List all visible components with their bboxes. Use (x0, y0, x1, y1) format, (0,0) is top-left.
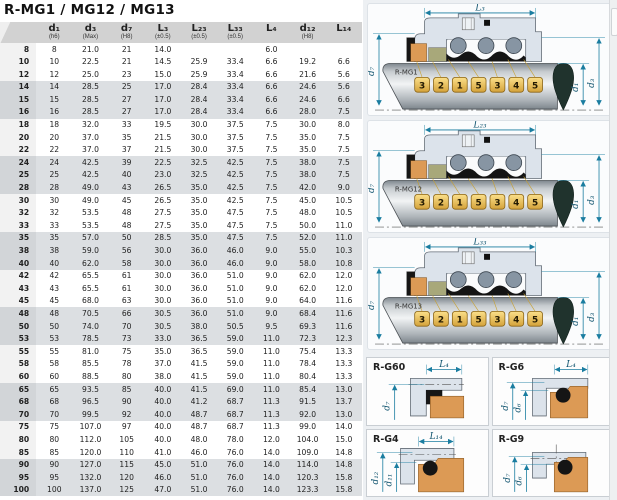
value-cell: 22 (36, 144, 72, 157)
value-cell: 25.9 (181, 56, 217, 69)
value-cell: 28.5 (145, 232, 181, 245)
column-header-size (0, 22, 36, 43)
value-cell: 42.5 (72, 156, 108, 169)
size-cell: 10 (0, 56, 36, 69)
value-cell: 7.5 (253, 156, 289, 169)
value-cell: 50.0 (290, 219, 326, 232)
table-row: 686896.59040.041.268.711.391.513.7 (0, 396, 362, 409)
size-cell: 38 (0, 245, 36, 258)
value-cell: 28.4 (181, 81, 217, 94)
size-cell: 85 (0, 446, 36, 459)
value-cell: 59.0 (217, 358, 253, 371)
value-cell: 21.6 (290, 68, 326, 81)
value-cell: 21 (109, 56, 145, 69)
diagram-r-mg1: 3215345 L₃ R-MG1 d₇ d₁ d₃ (367, 3, 613, 116)
value-cell: 15.0 (145, 68, 181, 81)
table-row: 434365.56130.036.051.09.062.012.0 (0, 282, 362, 295)
value-cell: 78 (109, 358, 145, 371)
value-cell: 33.4 (217, 93, 253, 106)
table-row: 383859.05630.036.046.09.055.010.3 (0, 245, 362, 258)
callout-number: 3 (494, 199, 500, 209)
value-cell: 80 (109, 370, 145, 383)
callout-number: 3 (494, 316, 500, 326)
value-cell: 22.5 (145, 156, 181, 169)
value-cell: 53.5 (72, 207, 108, 220)
table-row: 252542.54023.032.542.57.538.07.5 (0, 169, 362, 182)
value-cell: 17.0 (145, 81, 181, 94)
value-cell: 85.5 (72, 358, 108, 371)
value-cell: 7.5 (253, 182, 289, 195)
value-cell: 42.5 (217, 156, 253, 169)
value-cell: 33.4 (217, 56, 253, 69)
value-cell: 6.0 (253, 43, 289, 56)
callout-number: 5 (476, 316, 482, 326)
value-cell: 93.5 (72, 383, 108, 396)
spec-table-body: 8821.02114.06.0101022.52114.525.933.46.6… (0, 43, 362, 496)
value-cell: 69.3 (290, 320, 326, 333)
value-cell: 7.5 (253, 207, 289, 220)
value-cell: 12.0 (326, 282, 362, 295)
dim-label-d7: d₇ (383, 401, 393, 411)
value-cell: 14.0 (145, 43, 181, 56)
seat-diagram-grid: R-G60 L₄ d₇ R-G6 (363, 354, 617, 500)
value-cell: 28.0 (290, 106, 326, 119)
value-cell: 68.4 (290, 307, 326, 320)
value-cell: 10.3 (326, 245, 362, 258)
table-row: 121225.02315.025.933.46.621.65.6 (0, 68, 362, 81)
size-cell: 8 (0, 43, 36, 56)
size-cell: 20 (0, 131, 36, 144)
value-cell: 25 (109, 81, 145, 94)
value-cell: 73 (109, 333, 145, 346)
value-cell: 37 (109, 144, 145, 157)
size-cell: 14 (0, 81, 36, 94)
value-cell: 46.0 (145, 471, 181, 484)
value-cell: 25.0 (72, 68, 108, 81)
value-cell: 17.0 (145, 93, 181, 106)
value-cell: 99.0 (290, 421, 326, 434)
size-cell: 53 (0, 333, 36, 346)
value-cell: 6.6 (326, 56, 362, 69)
value-cell: 123.3 (290, 484, 326, 497)
callout-number: 1 (457, 199, 463, 209)
column-header: L₃(±0.5) (145, 22, 181, 43)
value-cell: 7.5 (253, 131, 289, 144)
value-cell: 52.0 (290, 232, 326, 245)
value-cell: 35.0 (290, 131, 326, 144)
value-cell: 90 (109, 396, 145, 409)
value-cell: 6.6 (253, 106, 289, 119)
value-cell: 62.0 (290, 282, 326, 295)
value-cell: 78.0 (217, 433, 253, 446)
value-cell: 45.0 (290, 194, 326, 207)
value-cell: 132.0 (72, 471, 108, 484)
value-cell: 11.0 (326, 219, 362, 232)
value-cell: 51.0 (181, 484, 217, 497)
value-cell: 12.3 (326, 333, 362, 346)
value-cell: 38.0 (181, 320, 217, 333)
column-header: L₂₃(±0.5) (181, 22, 217, 43)
value-cell: 68 (36, 396, 72, 409)
table-row: 333353.54827.535.047.57.550.011.0 (0, 219, 362, 232)
value-cell: 30.5 (145, 320, 181, 333)
table-row: 323253.54827.535.047.57.548.010.5 (0, 207, 362, 220)
value-cell: 32.0 (72, 119, 108, 132)
value-cell: 85 (36, 446, 72, 459)
catalog-page: { "title": "R-MG1 / MG12 / MG13", "table… (0, 0, 617, 500)
value-cell: 21.5 (145, 144, 181, 157)
value-cell: 11.3 (253, 396, 289, 409)
value-cell: 69.0 (217, 383, 253, 396)
table-row: 282849.04326.535.042.57.542.09.0 (0, 182, 362, 195)
value-cell: 13.3 (326, 345, 362, 358)
value-cell: 53.5 (72, 219, 108, 232)
table-row: 8821.02114.06.0 (0, 43, 362, 56)
value-cell: 6.6 (253, 56, 289, 69)
table-row: 242442.53922.532.542.57.538.07.5 (0, 156, 362, 169)
value-cell: 65.5 (72, 282, 108, 295)
value-cell: 23 (109, 68, 145, 81)
table-row: 8080112.010540.048.078.012.0104.015.0 (0, 433, 362, 446)
value-cell: 62.0 (290, 270, 326, 283)
value-cell: 100 (36, 484, 72, 497)
value-cell: 35 (36, 232, 72, 245)
dim-label-d6: d₆ (514, 475, 524, 485)
table-row: 656593.58540.041.569.011.085.413.0 (0, 383, 362, 396)
value-cell: 10 (36, 56, 72, 69)
value-cell: 70 (109, 320, 145, 333)
value-cell: 74.0 (72, 320, 108, 333)
value-cell: 68.0 (72, 295, 108, 308)
value-cell: 70.5 (72, 307, 108, 320)
value-cell: 51.0 (217, 307, 253, 320)
value-cell: 47.0 (145, 484, 181, 497)
size-cell: 68 (0, 396, 36, 409)
value-cell: 10.8 (326, 257, 362, 270)
value-cell: 42.5 (217, 194, 253, 207)
size-cell: 35 (0, 232, 36, 245)
value-cell: 5.6 (326, 68, 362, 81)
size-cell: 90 (0, 459, 36, 472)
value-cell: 25 (36, 169, 72, 182)
value-cell: 81.0 (72, 345, 108, 358)
size-cell: 43 (0, 282, 36, 295)
callout-chips: 3215345 (415, 77, 543, 92)
value-cell: 11.0 (253, 383, 289, 396)
value-cell: 48 (109, 207, 145, 220)
size-cell: 12 (0, 68, 36, 81)
value-cell: 35.0 (181, 207, 217, 220)
value-cell: 42.0 (290, 182, 326, 195)
value-cell: 17.0 (145, 106, 181, 119)
value-cell: 11.3 (253, 408, 289, 421)
value-cell: 42.5 (72, 169, 108, 182)
value-cell: 65 (36, 383, 72, 396)
callout-number: 5 (532, 316, 538, 326)
value-cell: 30.0 (181, 131, 217, 144)
value-cell: 11.0 (253, 358, 289, 371)
value-cell: 112.0 (72, 433, 108, 446)
value-cell: 59.0 (217, 370, 253, 383)
value-cell: 19.2 (290, 56, 326, 69)
value-cell: 137.0 (72, 484, 108, 497)
value-cell: 9.0 (253, 307, 289, 320)
value-cell: 70 (36, 408, 72, 421)
value-cell: 33.0 (145, 333, 181, 346)
table-row: 454568.06330.036.051.09.064.011.6 (0, 295, 362, 308)
size-cell: 80 (0, 433, 36, 446)
value-cell: 48.0 (290, 207, 326, 220)
value-cell: 14.8 (326, 459, 362, 472)
value-cell: 37.5 (217, 144, 253, 157)
dim-label-d3: d₃ (587, 195, 597, 205)
table-row: 181832.03319.530.037.57.530.08.0 (0, 119, 362, 132)
size-cell: 65 (0, 383, 36, 396)
value-cell: 15.8 (326, 471, 362, 484)
value-cell: 46.0 (217, 245, 253, 258)
value-cell: 51.0 (181, 459, 217, 472)
size-cell: 33 (0, 219, 36, 232)
callout-number: 4 (513, 82, 519, 92)
value-cell: 14 (36, 81, 72, 94)
value-cell: 9.0 (253, 257, 289, 270)
value-cell: 76.0 (217, 459, 253, 472)
value-cell: 78.4 (290, 358, 326, 371)
size-cell: 75 (0, 421, 36, 434)
value-cell: 16 (36, 106, 72, 119)
value-cell: 38 (36, 245, 72, 258)
page-scrollbar[interactable] (609, 0, 617, 500)
value-cell: 41.0 (145, 446, 181, 459)
seal-model-label: R-MG12 (395, 185, 422, 193)
value-cell: 9.5 (253, 320, 289, 333)
value-cell: 33.4 (217, 81, 253, 94)
dim-label-d11: d₁₁ (385, 473, 395, 486)
size-cell: 55 (0, 345, 36, 358)
callout-number: 4 (513, 199, 519, 209)
table-row: 100100137.012547.051.076.014.0123.315.8 (0, 484, 362, 497)
value-cell: 90 (36, 459, 72, 472)
size-cell: 40 (0, 257, 36, 270)
value-cell: 48.0 (181, 433, 217, 446)
value-cell: 59.0 (217, 345, 253, 358)
value-cell: 50.5 (217, 320, 253, 333)
value-cell: 46.0 (217, 257, 253, 270)
value-cell: 40.0 (145, 408, 181, 421)
value-cell: 33.4 (217, 68, 253, 81)
value-cell: 55.0 (290, 245, 326, 258)
value-cell: 48 (109, 219, 145, 232)
table-row: 353557.05028.535.047.57.552.011.0 (0, 232, 362, 245)
value-cell: 33.4 (217, 106, 253, 119)
value-cell: 41.5 (181, 358, 217, 371)
size-cell: 15 (0, 93, 36, 106)
value-cell: 15 (36, 93, 72, 106)
value-cell: 21.5 (145, 131, 181, 144)
value-cell: 120 (109, 471, 145, 484)
value-cell: 51.0 (181, 471, 217, 484)
scrollbar-thumb[interactable] (611, 8, 617, 36)
value-cell: 36.0 (181, 270, 217, 283)
value-cell: 76.0 (217, 446, 253, 459)
dim-label-d6: d₆ (513, 403, 523, 413)
size-cell: 95 (0, 471, 36, 484)
dim-label-d12: d₁₂ (371, 471, 381, 484)
value-cell: 24 (36, 156, 72, 169)
size-cell: 18 (0, 119, 36, 132)
value-cell: 125 (109, 484, 145, 497)
callout-number: 1 (457, 82, 463, 92)
value-cell: 85.4 (290, 383, 326, 396)
value-cell: 59.0 (217, 333, 253, 346)
value-cell: 33 (109, 119, 145, 132)
value-cell: 58 (36, 358, 72, 371)
table-row: 202037.03521.530.037.57.535.07.5 (0, 131, 362, 144)
value-cell: 13.0 (326, 408, 362, 421)
table-row: 101022.52114.525.933.46.619.26.6 (0, 56, 362, 69)
callout-number: 4 (513, 316, 519, 326)
column-header: d₃(Max) (72, 22, 108, 43)
value-cell: 12.0 (253, 433, 289, 446)
value-cell: 40 (36, 257, 72, 270)
value-cell: 22.5 (72, 56, 108, 69)
value-cell: 68.7 (217, 421, 253, 434)
value-cell: 37.0 (72, 144, 108, 157)
value-cell: 61 (109, 282, 145, 295)
value-cell: 42.5 (217, 182, 253, 195)
dim-label-l3: L₃ (474, 4, 485, 13)
diagram-panel: 3215345 L₃ R-MG1 d₇ d₁ d₃ 3215345 L₂₃ R-… (363, 0, 617, 500)
value-cell: 107.0 (72, 421, 108, 434)
callout-chips: 3215345 (415, 311, 543, 326)
value-cell: 14.0 (253, 446, 289, 459)
value-cell: 57.0 (72, 232, 108, 245)
value-cell: 30 (36, 194, 72, 207)
value-cell: 11.0 (253, 370, 289, 383)
column-header: L₃₃(±0.5) (217, 22, 253, 43)
value-cell: 46.0 (181, 446, 217, 459)
value-cell: 51.0 (217, 295, 253, 308)
callout-chips: 3215345 (415, 194, 543, 209)
value-cell: 60 (36, 370, 72, 383)
diagram-r-g9: R-G9 d₇ d₆ (492, 429, 615, 498)
value-cell: 59.0 (72, 245, 108, 258)
dim-label-d7: d₇ (368, 183, 377, 193)
value-cell: 12 (36, 68, 72, 81)
value-cell: 47.5 (217, 232, 253, 245)
value-cell: 56 (109, 245, 145, 258)
callout-number: 5 (532, 82, 538, 92)
value-cell: 14.8 (326, 446, 362, 459)
value-cell: 30.0 (181, 144, 217, 157)
value-cell (290, 43, 326, 56)
value-cell: 110 (109, 446, 145, 459)
callout-number: 5 (476, 199, 482, 209)
value-cell: 5.6 (326, 81, 362, 94)
value-cell: 14.0 (253, 484, 289, 497)
value-cell: 37.5 (217, 131, 253, 144)
table-row: 9090127.011545.051.076.014.0114.014.8 (0, 459, 362, 472)
value-cell: 10.5 (326, 207, 362, 220)
value-cell: 30.0 (145, 270, 181, 283)
size-cell: 30 (0, 194, 36, 207)
value-cell: 68.7 (217, 408, 253, 421)
value-cell: 30.0 (290, 119, 326, 132)
value-cell: 11.3 (253, 421, 289, 434)
value-cell: 12.0 (326, 270, 362, 283)
value-cell: 9.0 (253, 282, 289, 295)
value-cell: 21.0 (72, 43, 108, 56)
callout-number: 3 (494, 82, 500, 92)
value-cell: 36.0 (181, 307, 217, 320)
dim-label-d7: d₇ (500, 401, 510, 411)
column-header: L₄ (253, 22, 289, 43)
value-cell: 78.5 (72, 333, 108, 346)
value-cell: 50 (109, 232, 145, 245)
value-cell: 36.5 (181, 345, 217, 358)
table-row: 8585120.011041.046.076.014.0109.014.8 (0, 446, 362, 459)
value-cell: 80 (36, 433, 72, 446)
value-cell (217, 43, 253, 56)
value-cell: 38.0 (145, 370, 181, 383)
value-cell: 114.0 (290, 459, 326, 472)
value-cell: 115 (109, 459, 145, 472)
size-cell: 16 (0, 106, 36, 119)
value-cell: 75 (36, 421, 72, 434)
column-header: d₁₂(H8) (290, 22, 326, 43)
value-cell: 6.6 (253, 68, 289, 81)
table-row: 707099.59240.048.768.711.392.013.0 (0, 408, 362, 421)
value-cell: 48.7 (181, 408, 217, 421)
value-cell: 32 (36, 207, 72, 220)
value-cell: 6.6 (326, 93, 362, 106)
value-cell: 127.0 (72, 459, 108, 472)
diagram-r-g4: R-G4 L₁₄ d₁₂ d₁₁ (366, 429, 489, 498)
value-cell: 42 (36, 270, 72, 283)
value-cell: 63 (109, 295, 145, 308)
value-cell: 7.5 (253, 219, 289, 232)
value-cell: 27.5 (145, 219, 181, 232)
value-cell: 27.5 (145, 207, 181, 220)
value-cell: 33 (36, 219, 72, 232)
diagram-r-g6: R-G6 L₄ d₇ d₆ (492, 357, 615, 426)
size-cell: 24 (0, 156, 36, 169)
value-cell: 76.0 (217, 471, 253, 484)
value-cell: 13.0 (326, 383, 362, 396)
value-cell: 30.0 (145, 282, 181, 295)
table-row: 606088.58038.041.559.011.080.413.3 (0, 370, 362, 383)
dim-label-d3: d₃ (587, 312, 597, 322)
value-cell: 41.2 (181, 396, 217, 409)
value-cell: 30.5 (145, 307, 181, 320)
value-cell: 51.0 (217, 270, 253, 283)
callout-number: 2 (438, 316, 444, 326)
value-cell: 30.0 (181, 119, 217, 132)
value-cell: 42.5 (217, 169, 253, 182)
value-cell: 7.5 (326, 131, 362, 144)
value-cell: 48 (36, 307, 72, 320)
size-cell: 100 (0, 484, 36, 497)
table-row: 484870.56630.536.051.09.068.411.6 (0, 307, 362, 320)
value-cell: 64.0 (290, 295, 326, 308)
column-header: L₁₄ (326, 22, 362, 43)
size-cell: 28 (0, 182, 36, 195)
callout-number: 3 (419, 199, 425, 209)
dim-label-l23: L₂₃ (473, 121, 487, 130)
value-cell: 80.4 (290, 370, 326, 383)
table-row: 555581.07535.036.559.011.075.413.3 (0, 345, 362, 358)
value-cell: 40.0 (145, 433, 181, 446)
